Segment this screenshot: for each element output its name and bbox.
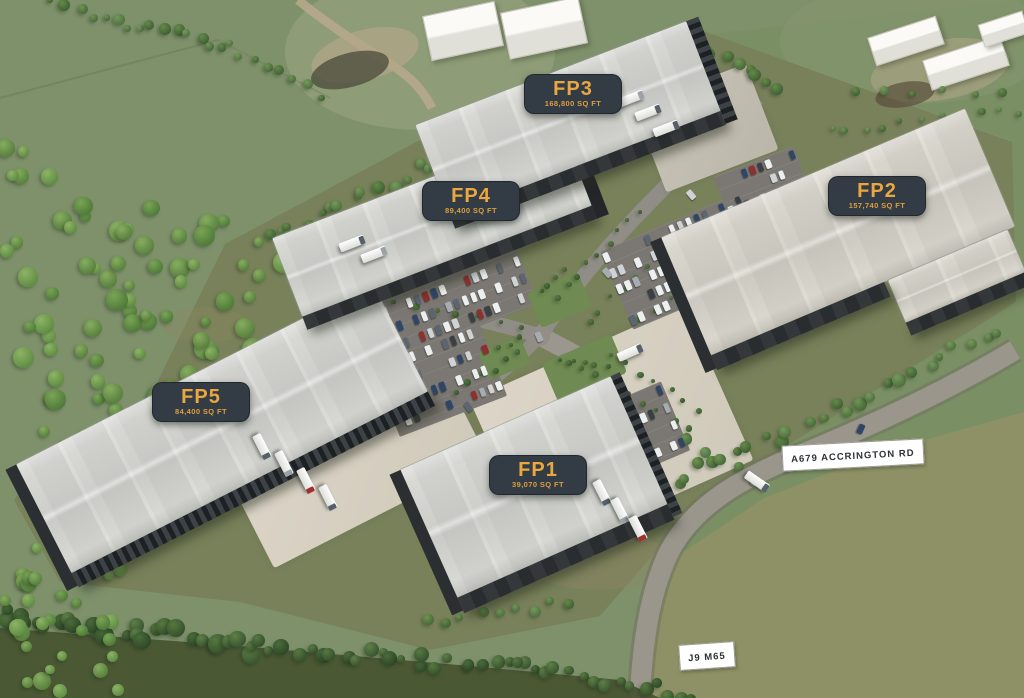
tree bbox=[84, 319, 102, 337]
tree bbox=[21, 641, 32, 652]
car bbox=[647, 408, 656, 419]
tree bbox=[0, 595, 11, 606]
tree bbox=[318, 95, 324, 101]
car bbox=[454, 375, 463, 386]
tree bbox=[39, 426, 50, 437]
tree bbox=[806, 417, 816, 427]
tree bbox=[423, 614, 434, 625]
tree bbox=[273, 639, 289, 655]
car bbox=[496, 262, 505, 273]
tree bbox=[264, 646, 273, 655]
tree bbox=[100, 270, 117, 287]
tree bbox=[293, 648, 307, 662]
bush bbox=[579, 366, 584, 371]
car bbox=[484, 305, 493, 316]
car bbox=[443, 321, 452, 332]
road-sign-j9-m65: J9 M65 bbox=[678, 641, 735, 671]
car bbox=[457, 332, 466, 343]
tree bbox=[216, 292, 234, 310]
tree bbox=[355, 187, 365, 197]
car bbox=[486, 384, 495, 395]
car bbox=[451, 318, 460, 329]
car bbox=[440, 339, 449, 350]
tree bbox=[36, 617, 49, 630]
car bbox=[748, 164, 757, 175]
tree bbox=[143, 200, 159, 216]
bush bbox=[558, 358, 562, 362]
car bbox=[677, 436, 686, 447]
car bbox=[420, 311, 429, 322]
tree bbox=[133, 632, 150, 649]
tree bbox=[79, 257, 96, 274]
tree bbox=[103, 633, 116, 646]
tree bbox=[679, 474, 689, 484]
bush bbox=[574, 274, 580, 280]
bush bbox=[544, 283, 550, 289]
plot-badge-fp4: FP4 89,400 SQ FT bbox=[422, 181, 520, 221]
plot-area: 168,800 SQ FT bbox=[535, 99, 611, 108]
car bbox=[634, 256, 643, 267]
car bbox=[764, 158, 773, 169]
tree bbox=[740, 441, 752, 453]
tree bbox=[201, 317, 211, 327]
tree bbox=[530, 606, 541, 617]
tree bbox=[134, 348, 146, 360]
car bbox=[438, 285, 447, 296]
car bbox=[662, 300, 671, 311]
car bbox=[424, 345, 433, 356]
car bbox=[624, 279, 633, 290]
tree bbox=[13, 347, 34, 368]
car bbox=[428, 308, 437, 319]
car bbox=[669, 440, 678, 451]
tree bbox=[172, 228, 187, 243]
tree bbox=[842, 406, 853, 417]
tree bbox=[978, 108, 986, 116]
car bbox=[453, 298, 462, 309]
tree bbox=[734, 462, 744, 472]
plot-id: FP3 bbox=[535, 79, 611, 99]
plot-id: FP4 bbox=[433, 186, 509, 206]
tree bbox=[226, 40, 233, 47]
tree bbox=[18, 146, 29, 157]
car bbox=[435, 324, 444, 335]
tree bbox=[141, 310, 152, 321]
bush bbox=[540, 289, 544, 293]
car bbox=[449, 335, 458, 346]
tree bbox=[2, 604, 13, 615]
bush bbox=[566, 360, 572, 366]
tree bbox=[103, 383, 123, 403]
plot-area: 39,070 SQ FT bbox=[500, 480, 576, 489]
tree bbox=[382, 651, 397, 666]
plot-badge-fp1: FP1 39,070 SQ FT bbox=[489, 455, 587, 495]
plot-area: 89,400 SQ FT bbox=[433, 206, 509, 215]
tree bbox=[96, 615, 111, 630]
tree bbox=[111, 256, 126, 271]
tree bbox=[920, 117, 925, 122]
car bbox=[740, 167, 749, 178]
tree bbox=[625, 681, 635, 691]
bush bbox=[583, 360, 588, 365]
car bbox=[494, 381, 503, 392]
plot-id: FP1 bbox=[500, 460, 576, 480]
bush bbox=[638, 210, 642, 214]
car bbox=[405, 297, 414, 308]
tree bbox=[194, 225, 215, 246]
car bbox=[461, 295, 470, 306]
car bbox=[637, 310, 646, 321]
tree bbox=[41, 168, 58, 185]
car bbox=[777, 169, 786, 180]
tree bbox=[779, 426, 791, 438]
tree bbox=[771, 83, 783, 95]
car bbox=[479, 365, 488, 376]
car bbox=[479, 269, 488, 280]
bush bbox=[680, 398, 685, 403]
tree bbox=[897, 118, 902, 123]
tree bbox=[479, 607, 489, 617]
aerial-site-plan: FP3 168,800 SQ FT FP4 89,400 SQ FT FP2 1… bbox=[0, 0, 1024, 698]
car bbox=[478, 387, 487, 398]
tree bbox=[229, 631, 245, 647]
car bbox=[478, 289, 487, 300]
tree bbox=[124, 280, 135, 291]
tree bbox=[820, 414, 828, 422]
tree bbox=[564, 599, 573, 608]
bush bbox=[503, 356, 509, 362]
tree bbox=[44, 343, 58, 357]
plot-badge-fp3: FP3 168,800 SQ FT bbox=[524, 74, 622, 114]
plot-area: 157,740 SQ FT bbox=[839, 201, 915, 210]
tree bbox=[865, 127, 871, 133]
car bbox=[471, 369, 480, 380]
car bbox=[617, 263, 626, 274]
tree bbox=[91, 374, 106, 389]
tree bbox=[90, 354, 104, 368]
car bbox=[769, 172, 778, 183]
tree bbox=[909, 91, 916, 98]
tree bbox=[936, 353, 943, 360]
bush bbox=[562, 267, 567, 272]
tree bbox=[74, 197, 93, 216]
tree bbox=[512, 657, 523, 668]
car bbox=[492, 302, 501, 313]
tree bbox=[546, 661, 559, 674]
car bbox=[494, 282, 503, 293]
car bbox=[470, 390, 479, 401]
tree bbox=[193, 332, 210, 349]
car bbox=[418, 331, 427, 342]
tree bbox=[546, 597, 554, 605]
car bbox=[517, 293, 526, 304]
road-sign-label: A679 ACCRINGTON RD bbox=[791, 448, 915, 465]
car bbox=[468, 312, 477, 323]
tree bbox=[175, 275, 187, 287]
car bbox=[447, 357, 456, 368]
tree bbox=[723, 51, 734, 62]
bush bbox=[670, 387, 675, 392]
tree bbox=[159, 23, 171, 35]
tree bbox=[661, 690, 674, 698]
tree bbox=[564, 666, 574, 676]
car bbox=[653, 303, 662, 314]
tree bbox=[107, 651, 118, 662]
tree bbox=[76, 625, 87, 636]
tree bbox=[264, 63, 272, 71]
tree bbox=[29, 572, 42, 585]
tree bbox=[0, 244, 14, 258]
car bbox=[471, 272, 480, 283]
bush bbox=[515, 349, 521, 355]
tree bbox=[72, 598, 82, 608]
car bbox=[465, 329, 474, 340]
tree bbox=[135, 236, 154, 255]
car bbox=[412, 314, 421, 325]
car bbox=[426, 328, 435, 339]
tree bbox=[997, 107, 1002, 112]
car bbox=[464, 350, 473, 361]
car bbox=[445, 400, 454, 411]
car bbox=[512, 256, 521, 267]
bush bbox=[637, 372, 643, 378]
plot-id: FP2 bbox=[839, 181, 915, 201]
car bbox=[430, 288, 439, 299]
tree bbox=[106, 289, 128, 311]
tree bbox=[946, 341, 956, 351]
car bbox=[445, 301, 454, 312]
car bbox=[648, 269, 657, 280]
bush bbox=[696, 408, 702, 414]
tree bbox=[104, 14, 111, 21]
tree bbox=[113, 14, 124, 25]
car bbox=[632, 276, 641, 287]
plot-id: FP5 bbox=[163, 387, 239, 407]
tree bbox=[442, 653, 452, 663]
car bbox=[469, 292, 478, 303]
car bbox=[629, 314, 638, 325]
bush bbox=[517, 334, 523, 340]
tree bbox=[167, 619, 185, 637]
plot-badge-fp5: FP5 84,400 SQ FT bbox=[152, 382, 250, 422]
car bbox=[422, 291, 431, 302]
tree bbox=[34, 314, 54, 334]
plot-area: 84,400 SQ FT bbox=[163, 407, 239, 416]
car bbox=[615, 283, 624, 294]
tree bbox=[53, 684, 67, 698]
car bbox=[430, 384, 439, 395]
car bbox=[670, 419, 679, 430]
tree bbox=[18, 267, 38, 287]
road-sign-label: J9 M65 bbox=[688, 651, 726, 665]
tree bbox=[205, 42, 214, 51]
bush bbox=[623, 360, 628, 365]
tree bbox=[840, 127, 847, 134]
tree bbox=[22, 677, 33, 688]
car bbox=[655, 385, 664, 396]
car bbox=[480, 344, 489, 355]
car bbox=[655, 284, 664, 295]
tree bbox=[477, 659, 489, 671]
tree bbox=[48, 370, 64, 386]
bush bbox=[499, 320, 503, 324]
tree bbox=[45, 389, 66, 410]
car bbox=[511, 276, 520, 287]
tree bbox=[235, 53, 242, 60]
tree bbox=[93, 663, 108, 678]
car bbox=[756, 161, 765, 172]
car bbox=[476, 309, 485, 320]
tree bbox=[33, 672, 51, 690]
bush bbox=[555, 295, 561, 301]
tree bbox=[188, 259, 200, 271]
tree bbox=[7, 170, 18, 181]
car bbox=[662, 402, 671, 413]
car bbox=[456, 354, 465, 365]
bush bbox=[509, 343, 513, 347]
tree bbox=[397, 655, 405, 663]
tree bbox=[283, 223, 291, 231]
bush bbox=[609, 353, 613, 357]
bush bbox=[496, 345, 501, 350]
bush bbox=[625, 218, 629, 222]
bush bbox=[588, 319, 593, 324]
car bbox=[519, 273, 528, 284]
car bbox=[647, 288, 656, 299]
tree bbox=[75, 344, 88, 357]
car bbox=[788, 149, 797, 160]
car bbox=[463, 275, 472, 286]
tree bbox=[598, 679, 611, 692]
tree bbox=[252, 634, 265, 647]
tree bbox=[56, 590, 67, 601]
plot-badge-fp2: FP2 157,740 SQ FT bbox=[828, 176, 926, 216]
tree bbox=[929, 361, 939, 371]
bush bbox=[686, 425, 692, 431]
tree bbox=[58, 0, 70, 11]
car bbox=[602, 251, 611, 262]
car bbox=[438, 381, 447, 392]
car bbox=[413, 294, 422, 305]
